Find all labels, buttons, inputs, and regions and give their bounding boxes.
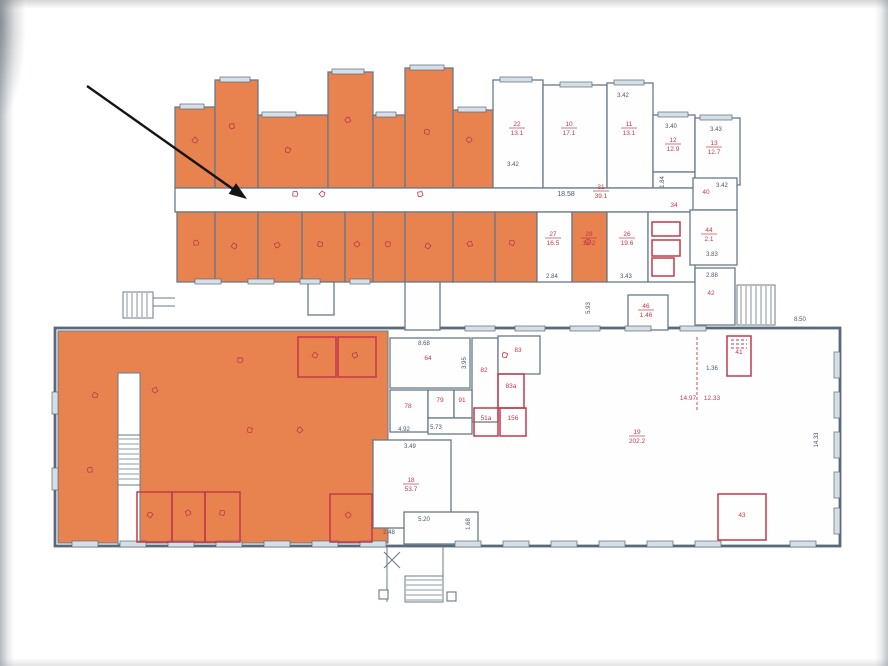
room-label: 13 [710,140,718,147]
floorplan-scan: 18.581.843.423.423.403.433.423.832.882.8… [0,0,888,666]
room-label: 27 [549,231,557,238]
window [350,279,370,284]
room [405,212,453,282]
window [180,104,204,109]
room [258,115,328,188]
room-label: 64 [424,355,432,362]
room [177,212,215,282]
window [500,77,532,82]
dim-label: 5.93 [586,302,592,314]
room [572,212,607,282]
window [264,541,290,547]
room [428,390,454,418]
room-label: 41 [735,349,743,356]
room-area-label: 13.1 [623,130,636,137]
dim-label: 2.88 [706,273,718,279]
window [458,107,486,112]
floorplan-svg: 18.581.843.423.423.403.433.423.832.882.8… [0,0,888,666]
room [215,80,258,188]
window [834,472,840,498]
window [52,392,58,414]
staircase [118,435,140,485]
dim-label: 3.40 [665,124,677,130]
room-label: 40 [702,189,710,196]
room-label: 19 [633,429,641,436]
window [570,326,600,331]
room-label: 34 [670,202,678,209]
room [453,110,493,188]
room-label: 78 [404,403,412,410]
window [410,65,444,70]
room-area-label: 12.9 [667,146,680,153]
dim-label: 3.49 [404,444,416,450]
window [658,112,688,117]
window [262,112,296,117]
room [405,68,453,188]
dim-label: 4.92 [398,427,410,433]
room [495,212,537,282]
window [834,432,840,458]
window [700,115,732,120]
room [693,178,737,210]
dim-label: 5.20 [418,517,430,523]
room-label: 44 [705,227,713,234]
room [373,115,405,188]
room-area-label: 17.1 [563,130,576,137]
room-label: 82 [480,367,488,374]
window [465,326,495,331]
room [454,390,472,418]
room [308,282,334,315]
window [599,541,625,547]
room-label: 156 [508,415,519,422]
window [300,279,320,284]
room-label: 28 [585,231,593,238]
room-area-label: 53.7 [405,486,418,493]
window [790,541,816,547]
room-area-label: 16.2 [583,240,596,247]
window [376,112,396,117]
room-area-label: 19.6 [621,240,634,247]
post [447,592,456,601]
window [551,541,577,547]
room [537,212,572,282]
dim-label: 14.33 [814,432,820,448]
room-label: 83а [506,383,517,390]
room-label: 18 [407,477,415,484]
room [175,107,215,188]
room-label: 42 [707,290,715,297]
room-area-label: 13.1 [511,130,524,137]
room-label: 12.33 [704,395,721,402]
window [248,279,274,284]
room-label: 31 [597,184,605,191]
dim-label: 3.42 [716,183,728,189]
window [625,326,651,331]
room-label: 22 [513,121,521,128]
room [258,212,302,282]
room-area-label: 1.46 [640,312,653,319]
room-area-label: 39.1 [595,193,608,200]
room [302,212,345,282]
dim-label: 2.48 [383,530,395,536]
room-label: 12 [669,137,677,144]
room [453,212,495,282]
window [834,352,840,378]
room [345,212,373,282]
room [175,188,695,212]
room-label: 83 [514,347,522,354]
room-area-label: 202.2 [629,438,646,445]
room-label: 10 [565,121,573,128]
window [560,82,592,87]
dim-label: 18.58 [557,191,575,198]
dim-label: 2.84 [546,274,558,280]
window [695,541,721,547]
room-label: 26 [623,231,631,238]
window [614,80,644,85]
room-label: 14.97 [680,395,697,402]
window [220,77,250,82]
dim-label: 8.50 [794,317,806,323]
window [72,541,98,547]
window [332,69,364,74]
dim-label: 3.83 [706,252,718,258]
room-area-label: 2.1 [704,236,713,243]
room-label: 43 [738,512,746,519]
window [503,541,529,547]
post [379,590,388,599]
room [390,338,470,388]
room-area-label: 12.7 [708,149,721,156]
window [515,326,545,331]
window [455,541,481,547]
room-label: 91 [458,397,466,404]
room-label: 79 [436,397,444,404]
room [328,72,373,188]
staircase [123,292,153,318]
dim-label: 3.43 [620,274,632,280]
dim-label: 1.84 [660,176,666,188]
room [390,390,428,432]
dim-label: 3.42 [617,93,629,99]
room-area-label: 16.5 [547,240,560,247]
dim-label: 3.42 [507,162,519,168]
room [472,338,498,422]
dim-label: 8.68 [418,341,430,347]
window [647,541,673,547]
window [680,326,706,331]
room-label: 46 [642,303,650,310]
window [834,508,840,534]
room [498,336,540,374]
window [195,279,221,284]
room [405,282,440,330]
window [52,468,58,490]
dim-label: 1.68 [466,518,472,530]
room [373,212,405,282]
window [834,392,840,418]
room-label: 51а [481,415,492,422]
dim-label: 3.43 [710,127,722,133]
dim-label: 3.95 [462,357,468,369]
dim-label: 1.36 [706,366,718,372]
room-label: 11 [626,121,633,128]
room [607,212,648,282]
dim-label: 5.73 [430,425,442,431]
